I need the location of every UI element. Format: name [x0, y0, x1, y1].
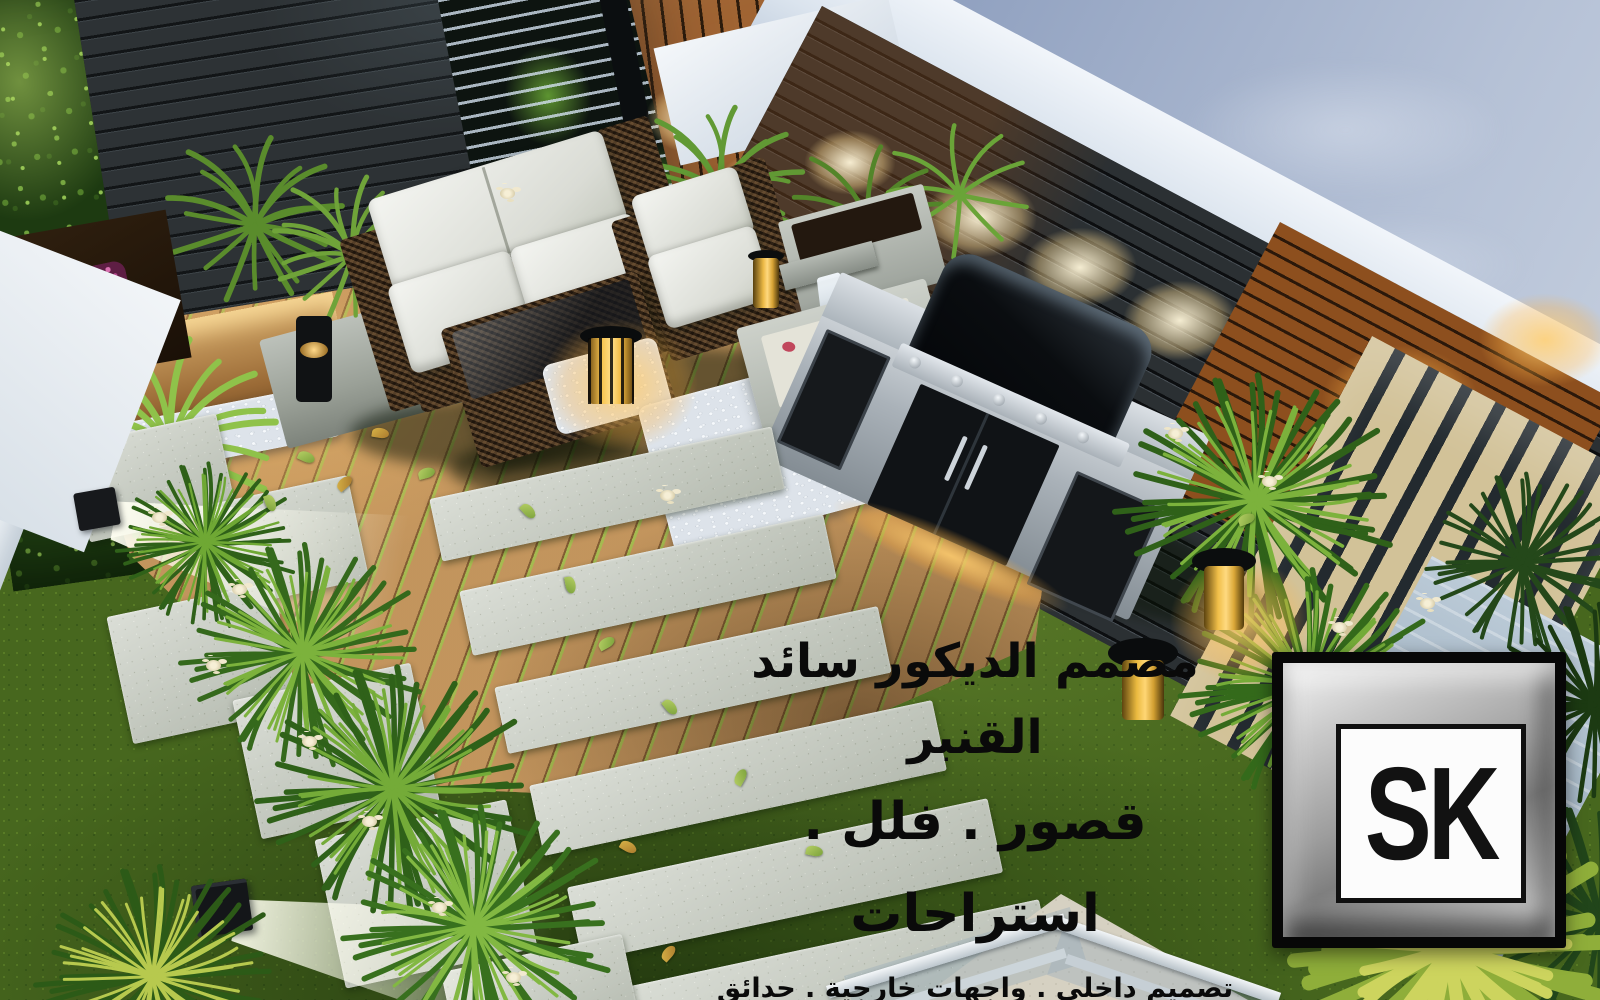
garden-render-scene: مصمم الديكور سائد القنبر قصور . فلل . اس…	[0, 0, 1600, 1000]
white-flower	[152, 512, 167, 523]
bollard-glow-slit	[300, 342, 328, 358]
bollard-body	[296, 316, 332, 402]
rose-petal	[782, 341, 796, 352]
white-flower	[362, 816, 377, 827]
fountain-lantern	[748, 250, 784, 312]
white-flower	[1168, 428, 1183, 439]
door-handle	[944, 436, 968, 482]
wall-sconce	[73, 487, 121, 532]
white-flower	[232, 584, 247, 595]
lantern-body	[753, 258, 779, 308]
door-gap	[933, 413, 989, 535]
white-flower	[432, 902, 447, 913]
watermark-services-line: قصور . فلل . استراحات	[690, 776, 1260, 960]
watermark-designer-name: مصمم الديكور سائد القنبر	[690, 624, 1260, 776]
white-flower	[1332, 622, 1347, 633]
logo-text: SK	[1365, 748, 1497, 880]
sk-logo-badge: SK	[1272, 652, 1566, 948]
watermark-text-block: مصمم الديكور سائد القنبر قصور . فلل . اس…	[690, 624, 1260, 1000]
grill-knob	[991, 392, 1007, 408]
grill-knob	[1033, 411, 1049, 427]
lantern-ribs	[588, 338, 634, 404]
path-bollard-light	[292, 316, 336, 402]
grass-tuft-highlight	[374, 826, 574, 1000]
white-flower	[302, 736, 317, 747]
white-flower	[500, 188, 515, 199]
grill-knob	[907, 355, 923, 371]
grass-tuft-highlight	[60, 884, 245, 1000]
logo-inner-square: SK	[1336, 724, 1526, 903]
logo-silver-frame: SK	[1283, 663, 1555, 937]
white-flower	[1262, 476, 1277, 487]
white-flower	[1420, 598, 1435, 609]
white-flower	[206, 660, 221, 671]
white-flower	[506, 972, 521, 983]
white-flower	[660, 490, 675, 501]
watermark-specialties-line: تصميم داخلي . واجهات خارجية . حدائق	[690, 960, 1260, 1000]
lantern-body	[1204, 566, 1244, 630]
door-handle	[964, 444, 988, 490]
lantern-body	[588, 338, 634, 404]
deck-lantern	[580, 326, 642, 412]
grill-knob	[1075, 429, 1091, 445]
grill-knob	[949, 373, 965, 389]
